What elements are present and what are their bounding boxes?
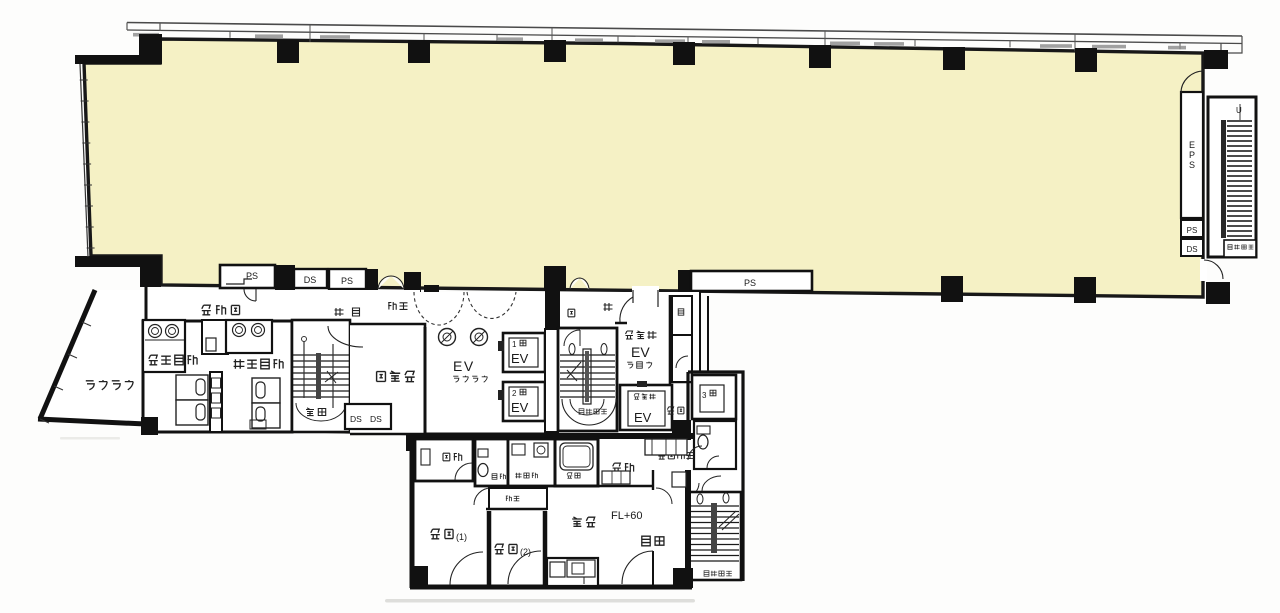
- svg-text:DS: DS: [370, 414, 382, 424]
- svg-text:DS: DS: [1186, 245, 1197, 254]
- svg-text:EV: EV: [634, 410, 652, 425]
- svg-text:PS: PS: [1187, 226, 1198, 235]
- svg-text:2: 2: [512, 389, 517, 398]
- svg-text:U: U: [1236, 106, 1242, 115]
- svg-text:FL+60: FL+60: [611, 510, 643, 522]
- svg-text:P: P: [1189, 150, 1195, 160]
- svg-text:(1): (1): [456, 532, 467, 542]
- svg-text:S: S: [1189, 160, 1195, 170]
- svg-text:PS: PS: [744, 278, 756, 288]
- svg-text:E: E: [1189, 140, 1195, 150]
- svg-text:PS: PS: [341, 276, 353, 286]
- svg-text:1: 1: [512, 340, 517, 349]
- svg-text:EV: EV: [631, 344, 650, 360]
- svg-text:3: 3: [702, 391, 707, 400]
- svg-text:(2): (2): [520, 547, 531, 557]
- svg-text:EV: EV: [453, 358, 475, 374]
- svg-text:DS: DS: [304, 275, 317, 285]
- svg-text:DS: DS: [350, 414, 362, 424]
- svg-text:EV: EV: [511, 351, 529, 366]
- svg-text:EV: EV: [511, 400, 529, 415]
